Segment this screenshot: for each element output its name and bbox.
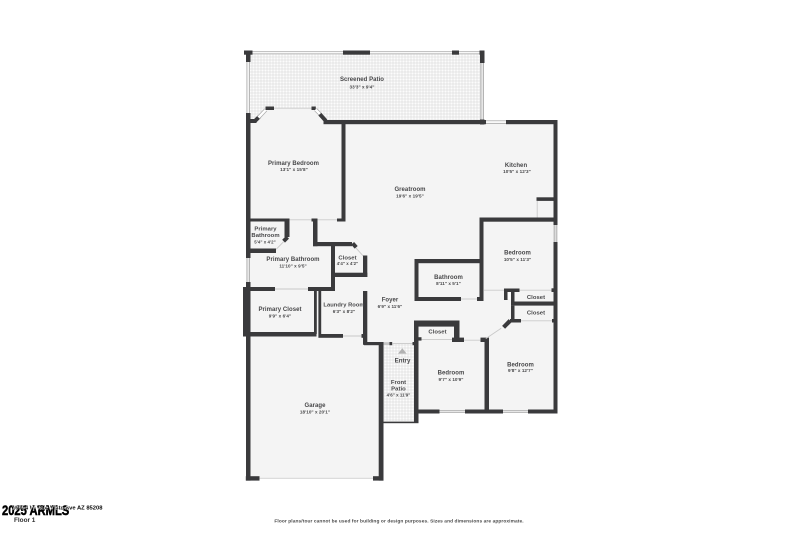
svg-text:Entry: Entry [395,357,411,364]
svg-text:2025 ARMLS: 2025 ARMLS [2,503,69,518]
svg-text:Floor plans/tour cannot be use: Floor plans/tour cannot be used for buil… [274,519,523,525]
svg-text:Bedroom: Bedroom [438,370,465,376]
svg-text:9'7" x 10'9": 9'7" x 10'9" [438,377,463,382]
svg-text:4'4" x 4'2": 4'4" x 4'2" [337,261,358,266]
svg-text:Floor 1: Floor 1 [14,517,36,524]
svg-text:8'11" x 5'1": 8'11" x 5'1" [436,281,461,286]
svg-text:Closet: Closet [527,310,545,316]
svg-text:Bedroom: Bedroom [504,251,531,257]
svg-text:9'8" x 12'7": 9'8" x 12'7" [508,368,533,373]
svg-text:9'9" x 6'4": 9'9" x 6'4" [269,313,291,318]
svg-text:5'4" x 4'2": 5'4" x 4'2" [254,239,275,244]
svg-text:Patio: Patio [391,386,406,392]
svg-text:13'1" x 15'8": 13'1" x 15'8" [280,167,308,172]
svg-text:19'6" x 19'5": 19'6" x 19'5" [396,194,424,199]
svg-text:Garage: Garage [305,403,327,409]
svg-text:6'9" x 11'6": 6'9" x 11'6" [378,304,403,309]
svg-text:Front: Front [391,380,406,386]
svg-text:Screened Patio: Screened Patio [340,77,384,83]
svg-text:18'10" x 20'1": 18'10" x 20'1" [300,409,330,414]
svg-text:10'5" x 11'3": 10'5" x 11'3" [504,257,531,262]
svg-text:Foyer: Foyer [382,297,399,303]
svg-text:Closet: Closet [428,329,446,335]
svg-text:Primary Bathroom: Primary Bathroom [266,257,319,263]
svg-text:6'3" x 8'2": 6'3" x 8'2" [333,309,355,314]
svg-text:Bathroom: Bathroom [251,233,279,239]
svg-text:10'5" x 12'3": 10'5" x 12'3" [503,169,531,174]
svg-text:4'6" x 11'9": 4'6" x 11'9" [387,393,411,398]
svg-text:Closet: Closet [527,295,545,301]
svg-text:Laundry Room: Laundry Room [323,303,364,309]
svg-text:Primary: Primary [254,227,277,233]
svg-text:11'10" x 9'5": 11'10" x 9'5" [279,264,306,269]
svg-text:Primary Closet: Primary Closet [258,307,301,313]
svg-text:33'3" x 9'4": 33'3" x 9'4" [349,85,374,90]
svg-text:Greatroom: Greatroom [394,187,425,193]
